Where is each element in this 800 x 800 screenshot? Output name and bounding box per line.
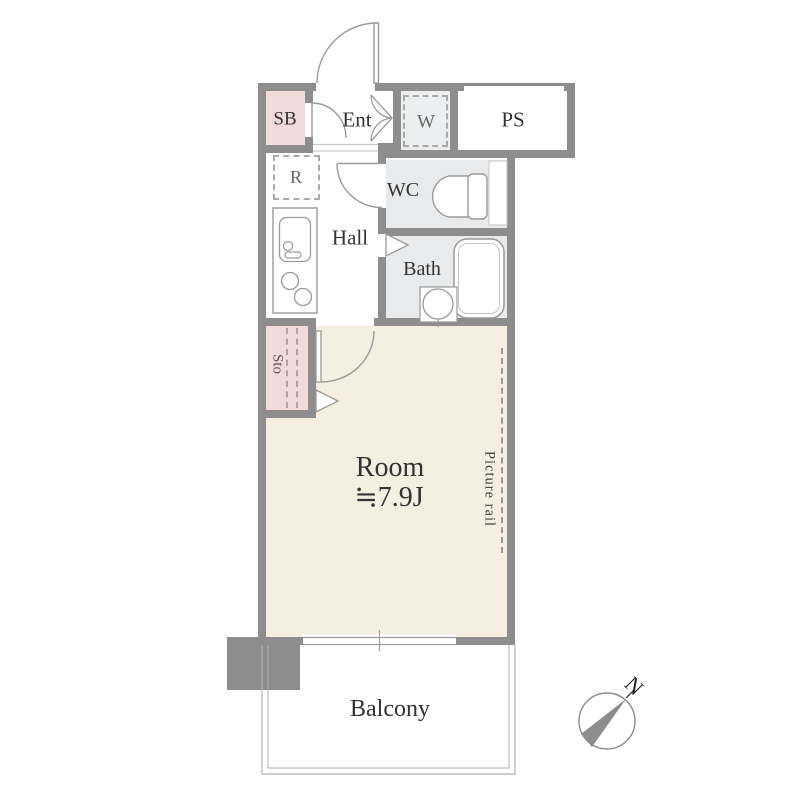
wall [378, 208, 386, 234]
compass-needle [581, 699, 626, 747]
label-room-size: ≒7.9J [354, 484, 423, 512]
label-hall: Hall [332, 228, 368, 249]
label-storage: Sto [270, 354, 285, 374]
sink-drain [284, 242, 293, 251]
sink-faucet [285, 252, 301, 258]
compass-north-label: N [621, 673, 648, 700]
wall [258, 145, 313, 153]
stove-burner [295, 289, 312, 306]
compass-circle [579, 693, 635, 749]
wall [258, 83, 266, 645]
wall [393, 150, 575, 158]
wall [456, 637, 515, 645]
wall [386, 228, 507, 236]
label-balcony: Balcony [350, 697, 430, 721]
wall [378, 257, 386, 326]
label-refrigerator: R [290, 168, 302, 186]
ps-vent-slit [464, 86, 564, 91]
wall [258, 410, 316, 418]
kitchen-counter [273, 208, 317, 313]
label-entrance: Ent [342, 110, 371, 131]
pillar [227, 637, 300, 690]
washer-double-door-arc [371, 118, 392, 141]
wall [374, 318, 507, 326]
label-bath: Bath [403, 259, 441, 279]
wall [308, 318, 316, 410]
storage-sliding-door-line [286, 328, 288, 408]
label-room: Room [356, 454, 424, 482]
washer-double-door-leaves [371, 95, 392, 141]
wall [507, 152, 515, 645]
label-pipe-space: PS [501, 110, 524, 131]
kitchen-sink [280, 218, 311, 262]
label-washer: W [417, 113, 435, 132]
wall [393, 83, 401, 158]
stove-burner [282, 273, 299, 290]
shoe-box-door-arc [312, 103, 346, 138]
entrance-door-arc [317, 23, 377, 83]
balcony-window [303, 634, 456, 647]
storage-sliding-door-line [296, 328, 298, 408]
label-wc: WC [387, 180, 419, 200]
picture-rail-line [501, 348, 503, 553]
label-picture-rail: Picture rail [482, 451, 497, 527]
entrance-step-line [313, 145, 378, 152]
wall [450, 83, 458, 158]
wall [305, 83, 313, 103]
wc-door-arc [337, 164, 382, 208]
floor-plan: SB Ent W PS R Hall WC Bath Sto Room ≒7.9… [0, 0, 800, 800]
label-shoe-box: SB [273, 110, 296, 129]
wall [378, 152, 386, 164]
wall [567, 83, 575, 158]
washer-double-door-arc [371, 95, 392, 118]
entrance-door-leaf [374, 23, 379, 83]
